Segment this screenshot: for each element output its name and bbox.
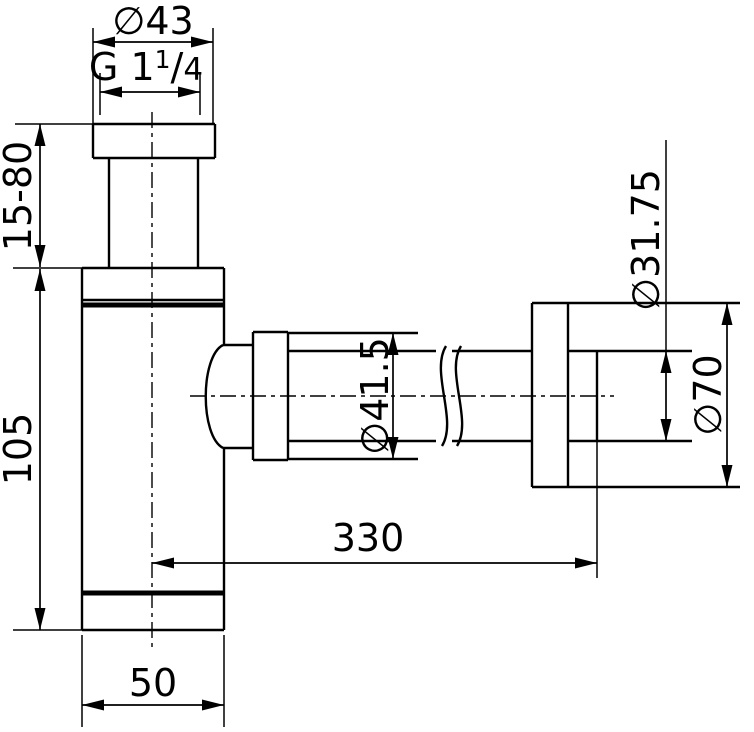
technical-drawing: ∅43 G 11/4 15-80 105 ∅41.5 ∅31.75 ∅70 33… bbox=[0, 0, 754, 732]
horizontal-length-label: 330 bbox=[332, 516, 405, 560]
thread-numerator: 1 bbox=[155, 45, 171, 74]
outlet-diameter-label: ∅41.5 bbox=[353, 337, 397, 455]
wall-tube-diameter-label: ∅31.75 bbox=[624, 169, 668, 311]
wall-flange-diameter-label: ∅70 bbox=[686, 354, 730, 435]
drawing-canvas: ∅43 G 11/4 15-80 105 ∅41.5 ∅31.75 ∅70 33… bbox=[0, 0, 754, 732]
body-bands bbox=[82, 305, 224, 593]
thread-denominator: 4 bbox=[183, 52, 203, 88]
body-width-label: 50 bbox=[129, 661, 177, 705]
top-diameter-label: ∅43 bbox=[112, 0, 193, 43]
thread-size-label: G 11/4 bbox=[89, 45, 203, 89]
dimension-labels: ∅43 G 11/4 15-80 105 ∅41.5 ∅31.75 ∅70 33… bbox=[0, 0, 730, 705]
inlet-height-range-label: 15-80 bbox=[0, 141, 40, 251]
body-height-label: 105 bbox=[0, 413, 40, 486]
thread-slash: / bbox=[171, 45, 184, 89]
thread-prefix: G 1 bbox=[89, 45, 155, 89]
